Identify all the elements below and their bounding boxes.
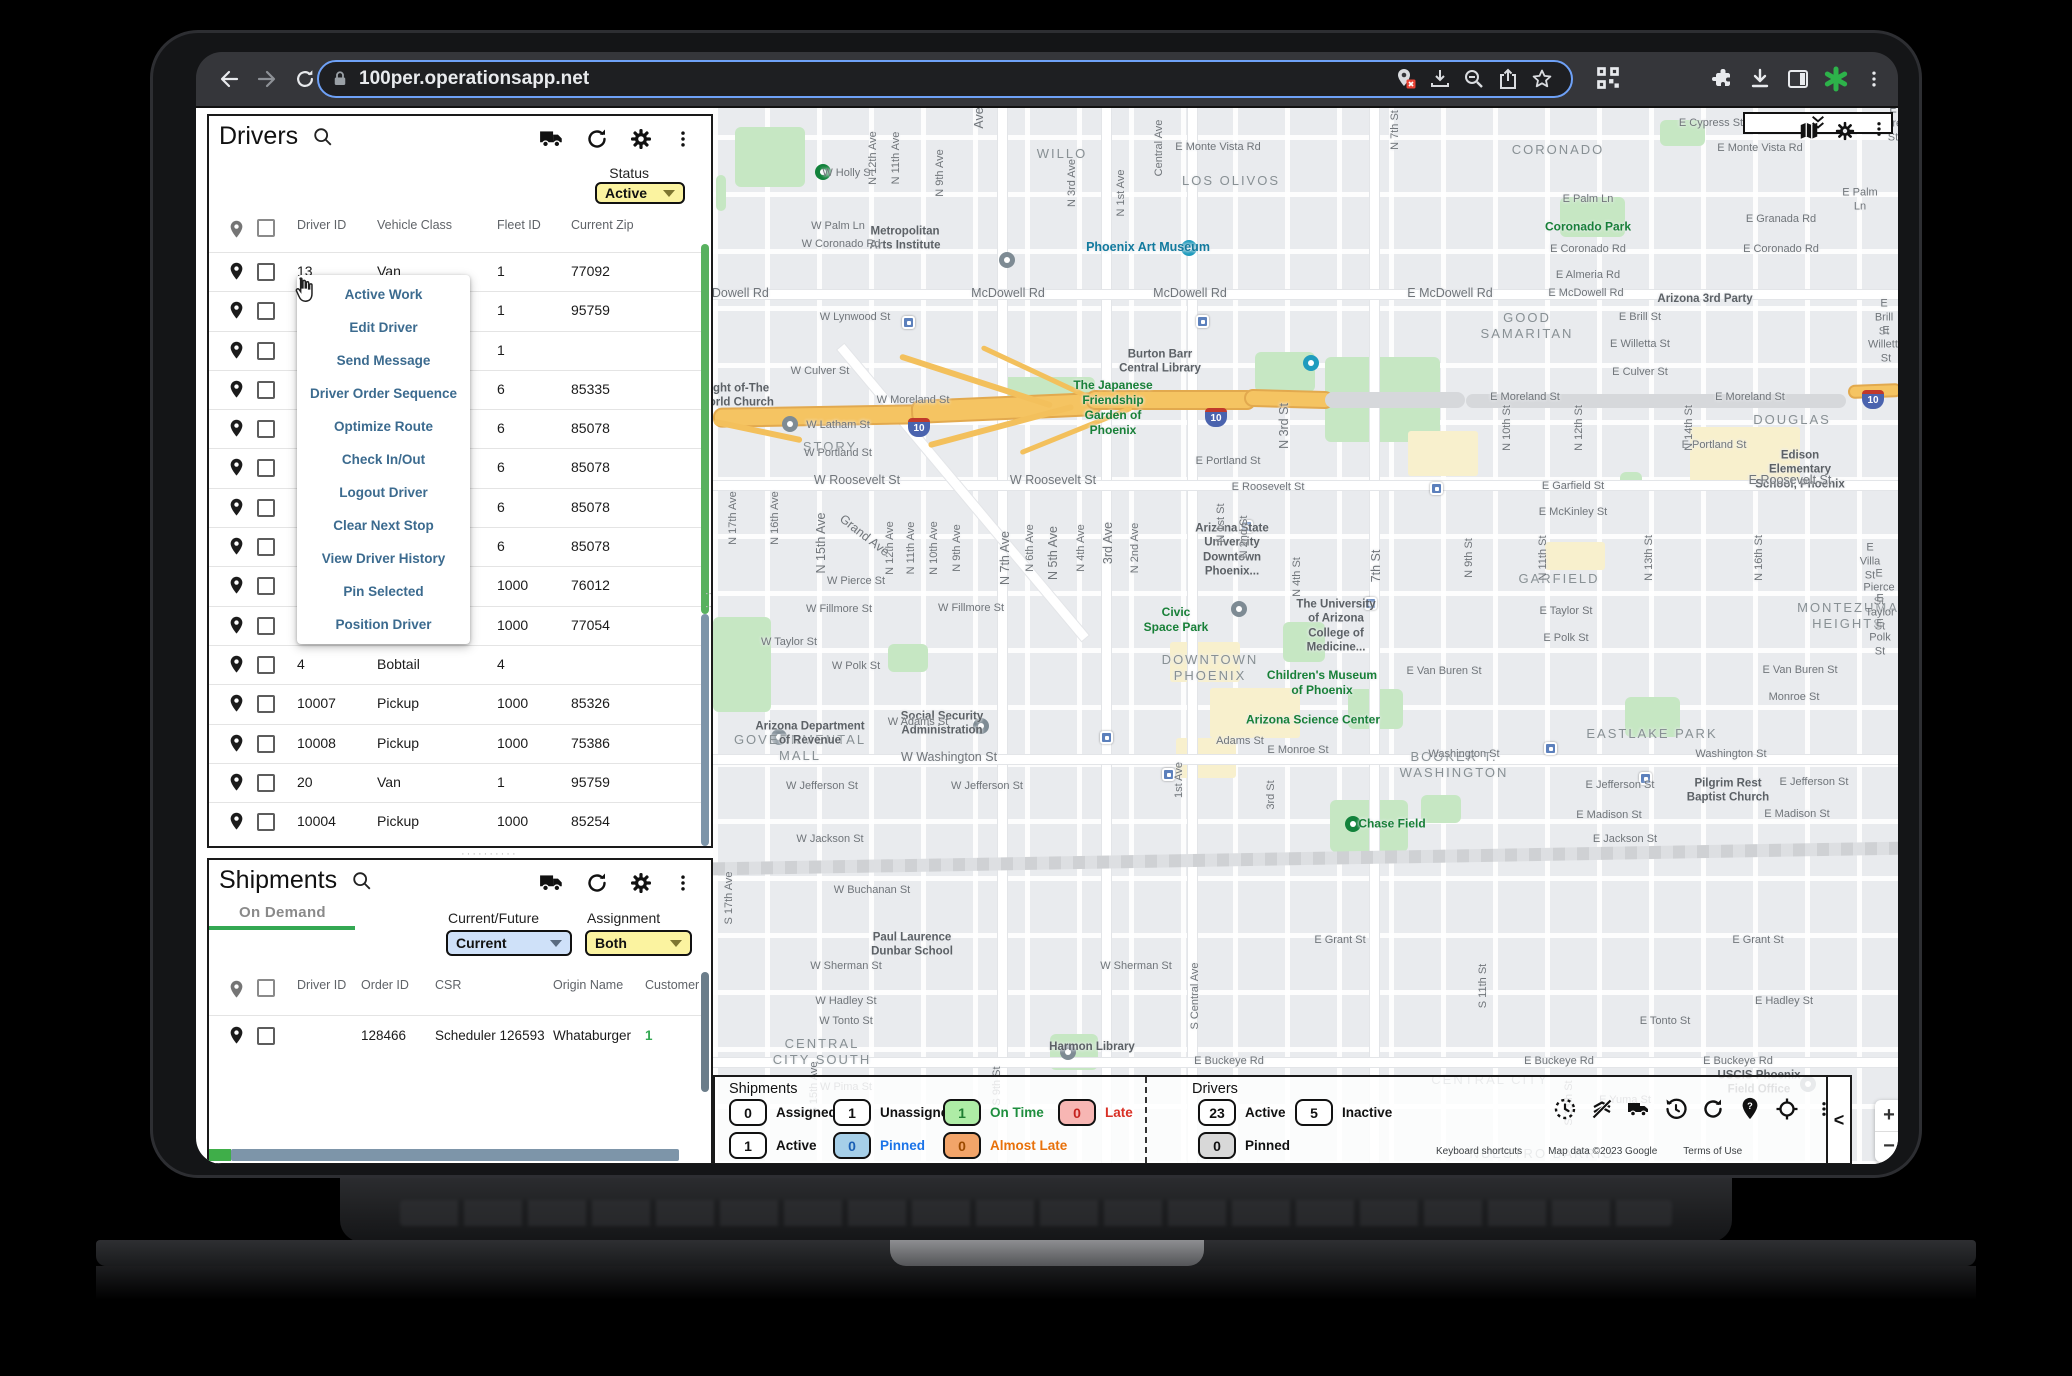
vehicle-class: Pickup [377, 813, 419, 829]
map-label: W Fillmore St [806, 603, 872, 617]
side-panel-button[interactable] [1782, 63, 1814, 95]
driver-id: 10007 [297, 695, 336, 711]
zoom-out-button[interactable]: − [1875, 1132, 1898, 1163]
menu-item[interactable]: Send Message [297, 344, 470, 377]
driver-id: 4 [297, 656, 305, 672]
assignment-dropdown[interactable]: Both [585, 930, 692, 956]
terms-link[interactable]: Terms of Use [1683, 1146, 1742, 1157]
row-checkbox[interactable] [257, 263, 275, 281]
map-label: E Roosevelt St [1749, 473, 1832, 489]
menu-item[interactable]: Edit Driver [297, 311, 470, 344]
laptop-notch [890, 1240, 1204, 1266]
map-label: N 6th Ave [1024, 524, 1038, 572]
gear-icon[interactable] [629, 871, 653, 895]
browser-toolbar: 100per.operationsapp.net [196, 52, 1898, 106]
map-label: E Portland St [1196, 455, 1261, 469]
map-label: N 2nd St [1238, 516, 1252, 559]
scrollbar-green[interactable] [701, 244, 709, 614]
bar-drivers-title: Drivers [1192, 1081, 1238, 1097]
map-label: N 16th St [1753, 535, 1767, 581]
table-row[interactable]: 20 Van 1 95759 [209, 763, 701, 802]
chevron-down-icon [663, 190, 675, 197]
map-label: DOUGLAS [1753, 412, 1831, 428]
poi-pin-icon[interactable] [1303, 355, 1319, 371]
refresh-icon[interactable] [585, 871, 609, 895]
map-label: E Van Buren St [1406, 665, 1481, 679]
fleet-id: 6 [497, 420, 505, 436]
current-zip: 85254 [571, 813, 610, 829]
hscroll-thumb[interactable] [231, 1149, 679, 1161]
map-label: E Tonto St [1640, 1015, 1691, 1029]
forward-icon [255, 67, 279, 91]
map-label: Children's Museum of Phoenix [1267, 668, 1377, 698]
fleet-id: 1 [497, 302, 505, 318]
map-label: W Washington St [901, 750, 997, 766]
road [1102, 108, 1111, 1164]
vehicle-class: Pickup [377, 735, 419, 751]
shipments-panel: Shipments On Demand Current/Future Curre… [207, 858, 713, 1164]
downloads-button[interactable] [1744, 63, 1776, 95]
row-checkbox[interactable] [257, 695, 275, 713]
row-checkbox[interactable] [257, 656, 275, 674]
interstate-10-shield: 10 [1862, 390, 1884, 409]
map-label: E Monte Vista Rd [1717, 142, 1802, 156]
fleet-id: 6 [497, 459, 505, 475]
hand-cursor [291, 276, 317, 309]
badge-count: 5 [1295, 1099, 1333, 1126]
download-icon [1748, 67, 1772, 91]
map-label: E Brill St [1619, 311, 1661, 325]
poi-pin-icon[interactable] [1231, 601, 1247, 617]
row-checkbox[interactable] [257, 735, 275, 753]
map-label: E Granada Rd [1746, 213, 1816, 227]
badge-label: Active [1245, 1105, 1286, 1120]
browser-menu-button[interactable] [1858, 63, 1890, 95]
map-label: Chase Field [1358, 817, 1425, 832]
map-label: E Coronado Rd [1550, 243, 1626, 257]
history-clock-icon [1664, 1097, 1688, 1121]
chevron-down-icon [550, 940, 562, 947]
map-label: S 11th St [1477, 964, 1491, 1008]
map-icon[interactable] [1798, 120, 1820, 142]
zoom-in-button[interactable]: + [1875, 1100, 1898, 1131]
pin-column-icon [229, 220, 244, 242]
bar-shipments-title: Shipments [729, 1081, 798, 1097]
commercial-area [1408, 431, 1478, 476]
current-future-label: Current/Future [448, 910, 539, 926]
poi-pin-icon[interactable] [999, 252, 1015, 268]
map-label: N 15th Ave [814, 513, 830, 574]
locate-driver-icon[interactable] [229, 576, 244, 598]
map-label: W Culver St [791, 365, 850, 379]
map-label: GOOD SAMARITAN [1481, 310, 1574, 343]
current-zip: 85326 [571, 695, 610, 711]
truck-icon [1627, 1096, 1651, 1122]
map-label: LOS OLIVOS [1182, 173, 1280, 189]
locate-driver-icon[interactable] [229, 734, 244, 756]
badge-count: 0 [943, 1132, 981, 1159]
map-label: E Jefferson St [1780, 776, 1849, 790]
row-checkbox[interactable] [257, 774, 275, 792]
chevron-down-icon [670, 940, 682, 947]
pin-column-icon [229, 980, 244, 1002]
refresh-icon[interactable] [585, 127, 609, 151]
menu-item[interactable]: Optimize Route [297, 410, 470, 443]
map-label: N 9th Ave [934, 149, 948, 197]
map-label: The Japanese Friendship Garden of Phoeni… [1073, 378, 1152, 438]
truck-icon[interactable] [539, 126, 565, 152]
fleet-id: 1000 [497, 695, 528, 711]
chevron-left-icon: < [1834, 1110, 1845, 1131]
map-label: N 3rd Ave [1066, 159, 1080, 207]
map-label: Pilgrim Rest Baptist Church [1687, 777, 1769, 806]
menu-item[interactable]: Active Work [297, 278, 470, 311]
map-label: E Hadley St [1755, 995, 1813, 1009]
map-label: N 7th St [1389, 110, 1403, 150]
current-zip: 75386 [571, 735, 610, 751]
status-badge: 5 Inactive [1295, 1099, 1392, 1126]
row-checkbox[interactable] [257, 538, 275, 556]
table-row[interactable]: 4 Bobtail 4 [209, 645, 701, 684]
map-label: Phoenix Art Museum [1086, 240, 1210, 256]
highway-segment [1325, 392, 1465, 408]
shipment-row[interactable]: 128466 Scheduler 126593 Whataburger 1 [209, 1015, 701, 1055]
routes-off-button[interactable] [1590, 1097, 1614, 1121]
row-checkbox[interactable] [257, 813, 275, 831]
map-label: 3rd Ave [1101, 522, 1117, 564]
map-label: E Polk St [1543, 632, 1588, 646]
locate-driver-icon[interactable] [229, 616, 244, 638]
map-label: E Cypress St [1679, 117, 1743, 131]
map-label: E Buckeye Rd [1703, 1055, 1773, 1069]
locate-shipment-icon[interactable] [229, 1026, 244, 1048]
map-label: N 10th Ave [928, 521, 942, 575]
locate-driver-icon[interactable] [229, 498, 244, 520]
puzzle-icon [1710, 67, 1734, 91]
map-label: Arizona Science Center [1246, 713, 1380, 728]
status-dropdown[interactable]: Active [595, 182, 685, 204]
map-label: E Jefferson St [1586, 779, 1655, 793]
divider [1145, 1077, 1147, 1163]
question-pin-icon: ? [1739, 1097, 1761, 1121]
map-label: W Portland St [804, 447, 872, 461]
map-label: E Willetta St [1610, 338, 1670, 352]
fleet-id: 1000 [497, 735, 528, 751]
locate-button[interactable] [1775, 1097, 1799, 1121]
qr-scan-button[interactable] [1592, 62, 1624, 94]
map-label: E Grant St [1732, 934, 1783, 948]
row-checkbox[interactable] [257, 302, 275, 320]
map-label: N 9th St [1463, 538, 1477, 578]
row-checkbox[interactable] [257, 577, 275, 595]
laptop-screen: 100per.operationsapp.net [196, 52, 1898, 1164]
menu-item[interactable]: Position Driver [297, 608, 470, 641]
row-checkbox[interactable] [257, 617, 275, 635]
share-button[interactable] [1491, 64, 1525, 94]
menu-item[interactable]: View Driver History [297, 542, 470, 575]
transit-marker-icon[interactable] [902, 316, 915, 329]
shipment-order-id: 128466 [361, 1028, 406, 1043]
shipment-origin: Whataburger [553, 1028, 631, 1043]
map-label: N 12th Ave [867, 131, 881, 185]
history-button[interactable] [1664, 1097, 1688, 1121]
map-label: 3rd St [1265, 780, 1279, 809]
fleet-id: 1000 [497, 617, 528, 633]
locate-driver-icon[interactable] [229, 458, 244, 480]
park-area [735, 127, 805, 187]
menu-item[interactable]: Logout Driver [297, 476, 470, 509]
map-label: W Polk St [832, 660, 880, 674]
row-checkbox[interactable] [257, 1027, 275, 1045]
map-label: W Tonto St [819, 1015, 873, 1029]
current-zip: 77054 [571, 617, 610, 633]
map-label: E Monroe St [1267, 744, 1328, 758]
locate-driver-icon[interactable] [229, 380, 244, 402]
map-label: Central Ave [1153, 120, 1167, 177]
laptop-keyboard-deck [340, 1178, 1732, 1242]
pending-time-button[interactable] [1553, 1097, 1577, 1121]
map-label: The University of Arizona College of Med… [1296, 597, 1375, 655]
status-badge: 1 Active [729, 1132, 817, 1159]
status-badge: 0 Assigned [729, 1099, 837, 1126]
extensions-button[interactable] [1706, 63, 1738, 95]
scrollbar-thumb[interactable] [701, 614, 709, 846]
keyboard-shortcuts-link[interactable]: Keyboard shortcuts [1436, 1146, 1522, 1157]
map-label: E Taylor St [1540, 605, 1593, 619]
refresh-icon [1701, 1097, 1725, 1121]
refresh-map-button[interactable] [1701, 1097, 1725, 1121]
badge-label: Almost Late [990, 1138, 1067, 1153]
select-all-checkbox[interactable] [257, 979, 275, 997]
map-label: E Madison St [1764, 808, 1829, 822]
poi-pin-icon[interactable] [782, 416, 798, 432]
table-row[interactable]: 10008 Pickup 1000 75386 [209, 724, 701, 763]
tab-on-demand[interactable]: On Demand [239, 904, 326, 921]
gear-icon[interactable] [629, 127, 653, 151]
map-label: Light of-The World Church [713, 382, 774, 411]
more-vertical-icon[interactable] [673, 129, 693, 149]
search-icon[interactable] [312, 126, 334, 148]
map-label: N 16th Ave [769, 491, 783, 545]
green-asterisk-icon [1821, 64, 1851, 94]
transit-marker-icon[interactable] [1544, 742, 1557, 755]
status-badge: 1 Unassigned [833, 1099, 957, 1126]
driver-id: 10004 [297, 813, 336, 829]
map-label: Paul Laurence Dunbar School [871, 931, 953, 960]
fleet-id: 1 [497, 263, 505, 279]
show-trucks-button[interactable] [1627, 1097, 1651, 1121]
more-vertical-icon [1864, 69, 1884, 89]
map-label: W Jefferson St [786, 780, 858, 794]
scrollbar-thumb[interactable] [701, 972, 709, 1092]
status-badge: 23 Active [1198, 1099, 1286, 1126]
map-label: W Fillmore St [938, 602, 1004, 616]
shipments-title: Shipments [219, 866, 337, 895]
map-label: W Roosevelt St [814, 473, 900, 489]
map-label: E Madison St [1576, 809, 1641, 823]
more-vertical-icon[interactable] [673, 873, 693, 893]
locate-driver-icon[interactable] [229, 537, 244, 559]
fleet-id: 6 [497, 499, 505, 515]
crosshair-icon [1775, 1096, 1799, 1122]
badge-label: Inactive [1342, 1105, 1392, 1120]
map-label: W Jefferson St [951, 780, 1023, 794]
unknown-location-button[interactable]: ? [1738, 1097, 1762, 1121]
map-label: Coronado Park [1545, 220, 1631, 235]
locate-driver-icon[interactable] [229, 262, 244, 284]
table-row[interactable]: 10004 Pickup 1000 85254 [209, 802, 701, 841]
transit-marker-icon[interactable] [1196, 315, 1209, 328]
map-label: 1st Ave [1173, 762, 1187, 798]
map-label: Arizona State University Downtown Phoeni… [1195, 521, 1269, 579]
current-zip: 95759 [571, 302, 610, 318]
app-content: Drivers Status Active Driver ID [196, 106, 1898, 1164]
vehicle-class: Van [377, 774, 401, 790]
zoom-out-button[interactable] [1457, 64, 1491, 94]
map-label: W Palm Ln [811, 220, 865, 234]
map-label: W Sherman St [1100, 960, 1172, 974]
current-zip: 85078 [571, 538, 610, 554]
menu-item[interactable]: Check In/Out [297, 443, 470, 476]
map-label: E Villa St [1856, 541, 1884, 582]
locate-driver-icon[interactable] [229, 694, 244, 716]
map-label: N 14th St [1683, 405, 1697, 451]
laptop-mockup: 100per.operationsapp.net [0, 0, 2072, 1376]
map-label: E Willetta St [1868, 324, 1898, 365]
extension-action-button[interactable] [1820, 63, 1852, 95]
map-zoom-control: + − [1875, 1100, 1898, 1162]
map-label: CENTRAL CITY SOUTH [773, 1036, 872, 1069]
shipment-csr: Scheduler 126593 [435, 1028, 545, 1043]
side-panel-icon [1786, 67, 1810, 91]
map-label: E Garfield St [1542, 480, 1604, 494]
forward-button[interactable] [248, 60, 286, 98]
map-label: W Pierce St [827, 575, 885, 589]
reload-icon [294, 68, 316, 90]
row-checkbox[interactable] [257, 381, 275, 399]
fleet-id: 1 [497, 774, 505, 790]
map-label: N 5th Ave [1046, 526, 1062, 580]
row-checkbox[interactable] [257, 459, 275, 477]
search-icon[interactable] [351, 870, 373, 892]
menu-item[interactable]: Driver Order Sequence [297, 377, 470, 410]
map-label: Washington St [1695, 748, 1766, 762]
map-label: E Moreland St [1715, 391, 1785, 405]
transit-marker-icon[interactable] [1430, 482, 1443, 495]
select-all-checkbox[interactable] [257, 219, 275, 237]
map-label: E McDowell Rd [1548, 287, 1623, 301]
map-label: W Adams St [888, 716, 949, 730]
map-label: Civic Space Park [1144, 605, 1209, 635]
badge-count: 1 [729, 1132, 767, 1159]
install-app-button[interactable] [1423, 64, 1457, 94]
row-checkbox[interactable] [257, 420, 275, 438]
locate-driver-icon[interactable] [229, 419, 244, 441]
clock-dashed-icon [1553, 1097, 1577, 1121]
map-label: W Lynwood St [820, 311, 891, 325]
keyboard [400, 1200, 1672, 1226]
svg-text:?: ? [1747, 1101, 1753, 1111]
park-area [716, 175, 726, 211]
map-label: DOWNTOWN PHOENIX [1162, 652, 1259, 685]
current-zip: 85335 [571, 381, 610, 397]
locate-driver-icon[interactable] [229, 301, 244, 323]
map-label: CORONADO [1512, 142, 1605, 158]
map-label: N 10th St [1501, 405, 1515, 451]
back-button[interactable] [210, 60, 248, 98]
current-zip: 85078 [571, 459, 610, 475]
install-icon [1428, 67, 1452, 91]
park-area [1421, 795, 1461, 823]
current-zip: 77092 [571, 263, 610, 279]
badge-label: On Time [990, 1105, 1044, 1120]
map-label: W Jackson St [796, 833, 863, 847]
badge-label: Active [776, 1138, 817, 1153]
url-bar[interactable]: 100per.operationsapp.net [317, 60, 1573, 98]
map-label: McDowell Rd [713, 286, 769, 302]
settings-cog-icon[interactable] [1834, 120, 1856, 142]
row-checkbox[interactable] [257, 342, 275, 360]
badge-count: 1 [833, 1099, 871, 1126]
map-label: E Buckeye Rd [1194, 1055, 1264, 1069]
locate-driver-icon[interactable] [229, 773, 244, 795]
locate-driver-icon[interactable] [229, 655, 244, 677]
fleet-id: 6 [497, 538, 505, 554]
map-label: E Grant St [1314, 934, 1365, 948]
menu-item[interactable]: Pin Selected [297, 575, 470, 608]
star-icon [1530, 67, 1554, 91]
map-label: N 11th Ave [905, 522, 919, 575]
map-label: S 17th Ave [723, 871, 737, 924]
map-label: N 11th Ave [890, 132, 904, 185]
park-area [713, 617, 771, 712]
location-blocked-icon [1394, 67, 1418, 91]
map-label: 7th St [1369, 550, 1385, 583]
driver-id: 20 [297, 774, 313, 790]
commercial-area [1545, 542, 1605, 570]
map-label: E Roosevelt St [1232, 481, 1305, 495]
map-label: W Roosevelt St [1010, 473, 1096, 489]
map-label: W Hadley St [815, 995, 876, 1009]
map-label: Harmon Library [1049, 1040, 1135, 1054]
driver-id: 10008 [297, 735, 336, 751]
more-vertical-icon[interactable] [1870, 120, 1888, 138]
status-badge: 0 Late [1058, 1099, 1133, 1126]
menu-item[interactable]: Clear Next Stop [297, 509, 470, 542]
map-label: W Latham St [806, 419, 870, 433]
collapse-bar-button[interactable]: < [1828, 1075, 1852, 1164]
transit-marker-icon[interactable] [1100, 731, 1113, 744]
status-badge: 0 Pinned [833, 1132, 925, 1159]
row-checkbox[interactable] [257, 499, 275, 517]
bookmark-button[interactable] [1525, 64, 1559, 94]
map[interactable]: WILLOLOS OLIVOSCORONADOSTORYGOOD SAMARIT… [713, 108, 1898, 1164]
locate-driver-icon[interactable] [229, 812, 244, 834]
locate-driver-icon[interactable] [229, 341, 244, 363]
map-label: N 17th Ave [727, 491, 741, 545]
location-blocked-button[interactable] [1389, 64, 1423, 94]
table-row[interactable]: 10007 Pickup 1000 85326 [209, 684, 701, 723]
map-label: N 13th St [1643, 535, 1657, 581]
current-future-dropdown[interactable]: Current [446, 930, 572, 956]
shipments-table-header: Driver ID Order ID CSR Origin Name Custo… [209, 978, 701, 1008]
map-label: Adams St [1216, 735, 1264, 749]
fleet-id: 1000 [497, 813, 528, 829]
back-icon [217, 67, 241, 91]
map-label: Burton Barr Central Library [1119, 348, 1201, 377]
map-label: N 9th Ave [951, 524, 965, 572]
truck-icon[interactable] [539, 870, 565, 896]
